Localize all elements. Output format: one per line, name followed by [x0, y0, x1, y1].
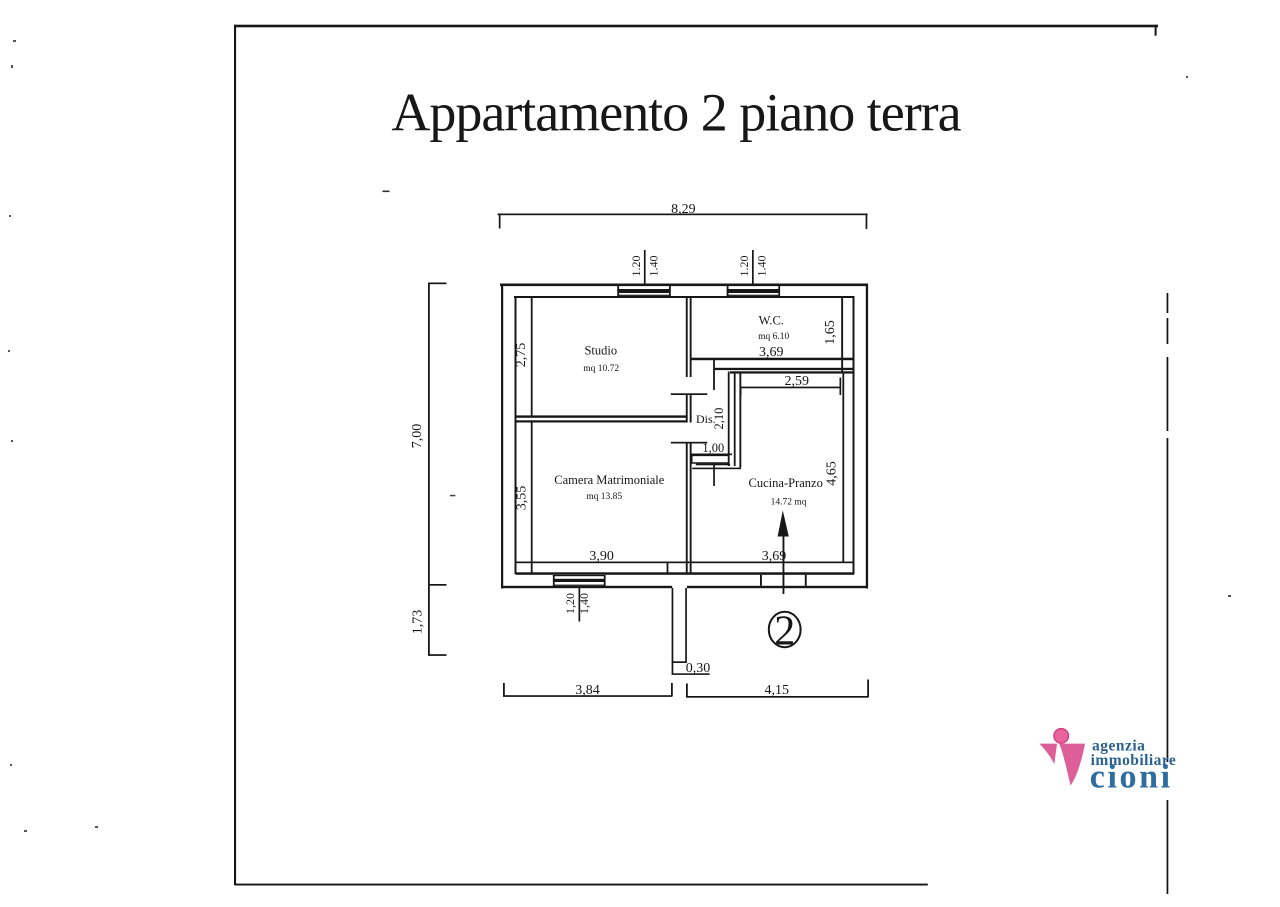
svg-text:mq 13.85: mq 13.85 — [586, 492, 622, 502]
svg-text:Appartamento 2 piano terra: Appartamento 2 piano terra — [391, 83, 961, 143]
svg-text:1,20: 1,20 — [563, 593, 577, 614]
svg-text:4,65: 4,65 — [825, 461, 840, 486]
svg-text:1,65: 1,65 — [823, 320, 838, 345]
svg-text:W.C.: W.C. — [759, 314, 784, 328]
svg-text:2: 2 — [774, 609, 795, 655]
svg-text:2,10: 2,10 — [712, 408, 726, 430]
svg-text:mq 6.10: mq 6.10 — [758, 332, 789, 342]
svg-text:1.20: 1.20 — [737, 256, 751, 277]
svg-text:8,29: 8,29 — [671, 202, 696, 217]
svg-text:1.40: 1.40 — [647, 256, 661, 277]
svg-text:3,84: 3,84 — [575, 683, 600, 698]
svg-text:Cucina-Pranzo: Cucina-Pranzo — [749, 476, 823, 490]
svg-text:Studio: Studio — [584, 344, 617, 358]
svg-text:1,00: 1,00 — [702, 441, 724, 455]
svg-text:2,75: 2,75 — [514, 343, 529, 368]
svg-text:1.20: 1.20 — [629, 256, 643, 277]
svg-text:mq 10.72: mq 10.72 — [583, 364, 619, 374]
svg-text:14.72 mq: 14.72 mq — [771, 498, 807, 508]
svg-text:4,15: 4,15 — [764, 683, 789, 698]
svg-text:1,73: 1,73 — [411, 610, 426, 635]
svg-text:1,40: 1,40 — [577, 593, 591, 614]
svg-text:3,90: 3,90 — [589, 549, 614, 564]
svg-text:3,55: 3,55 — [515, 486, 530, 511]
svg-text:1.40: 1.40 — [754, 256, 768, 277]
svg-text:7,00: 7,00 — [410, 424, 425, 449]
svg-text:cioni: cioni — [1090, 758, 1173, 795]
svg-text:0,30: 0,30 — [686, 661, 711, 676]
svg-text:Camera Matrimoniale: Camera Matrimoniale — [554, 473, 664, 487]
